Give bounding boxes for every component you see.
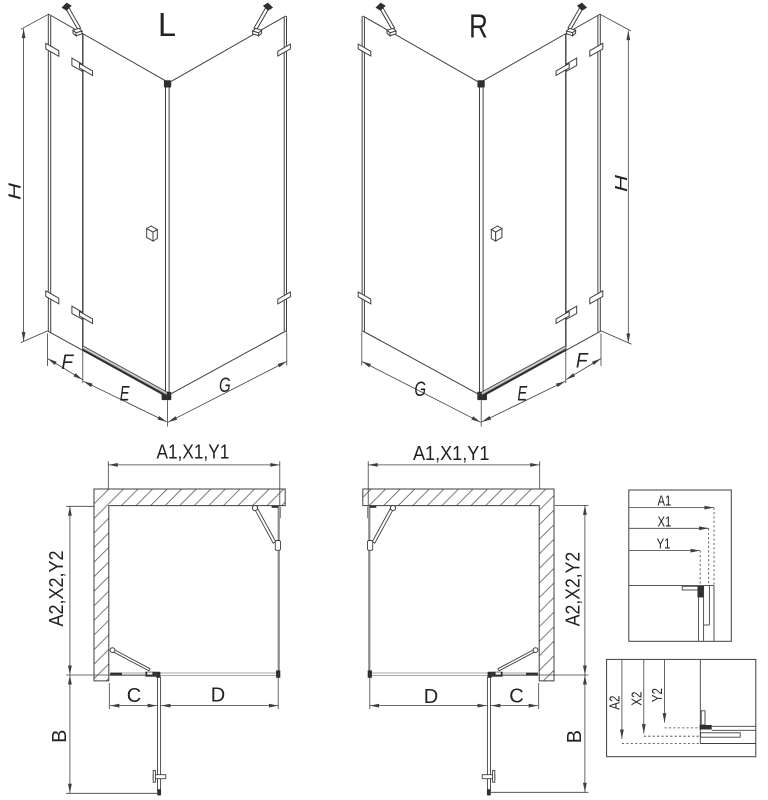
- svg-text:A2,X2,Y2: A2,X2,Y2: [563, 552, 585, 627]
- svg-text:E: E: [517, 383, 527, 406]
- svg-text:X1: X1: [658, 513, 672, 530]
- svg-text:B: B: [564, 730, 586, 743]
- svg-text:C: C: [509, 686, 523, 708]
- svg-text:A1,X1,Y1: A1,X1,Y1: [413, 443, 490, 465]
- svg-text:A2: A2: [607, 696, 624, 710]
- svg-text:E: E: [120, 383, 130, 406]
- svg-text:L: L: [158, 6, 176, 43]
- svg-text:H: H: [4, 183, 24, 200]
- svg-text:Y1: Y1: [657, 536, 671, 553]
- svg-text:A2,X2,Y2: A2,X2,Y2: [46, 551, 68, 627]
- svg-text:G: G: [219, 374, 231, 397]
- svg-text:A1,X1,Y1: A1,X1,Y1: [156, 442, 229, 464]
- svg-text:C: C: [127, 685, 141, 707]
- svg-text:B: B: [49, 730, 71, 743]
- svg-text:X2: X2: [628, 692, 645, 706]
- svg-text:F: F: [576, 350, 589, 373]
- svg-text:H: H: [611, 175, 631, 192]
- svg-text:A1: A1: [658, 493, 672, 510]
- svg-text:R: R: [469, 8, 488, 45]
- svg-text:G: G: [414, 378, 426, 401]
- svg-text:F: F: [61, 351, 74, 374]
- svg-text:Y2: Y2: [649, 688, 666, 702]
- svg-text:D: D: [424, 686, 438, 708]
- svg-text:D: D: [211, 685, 225, 707]
